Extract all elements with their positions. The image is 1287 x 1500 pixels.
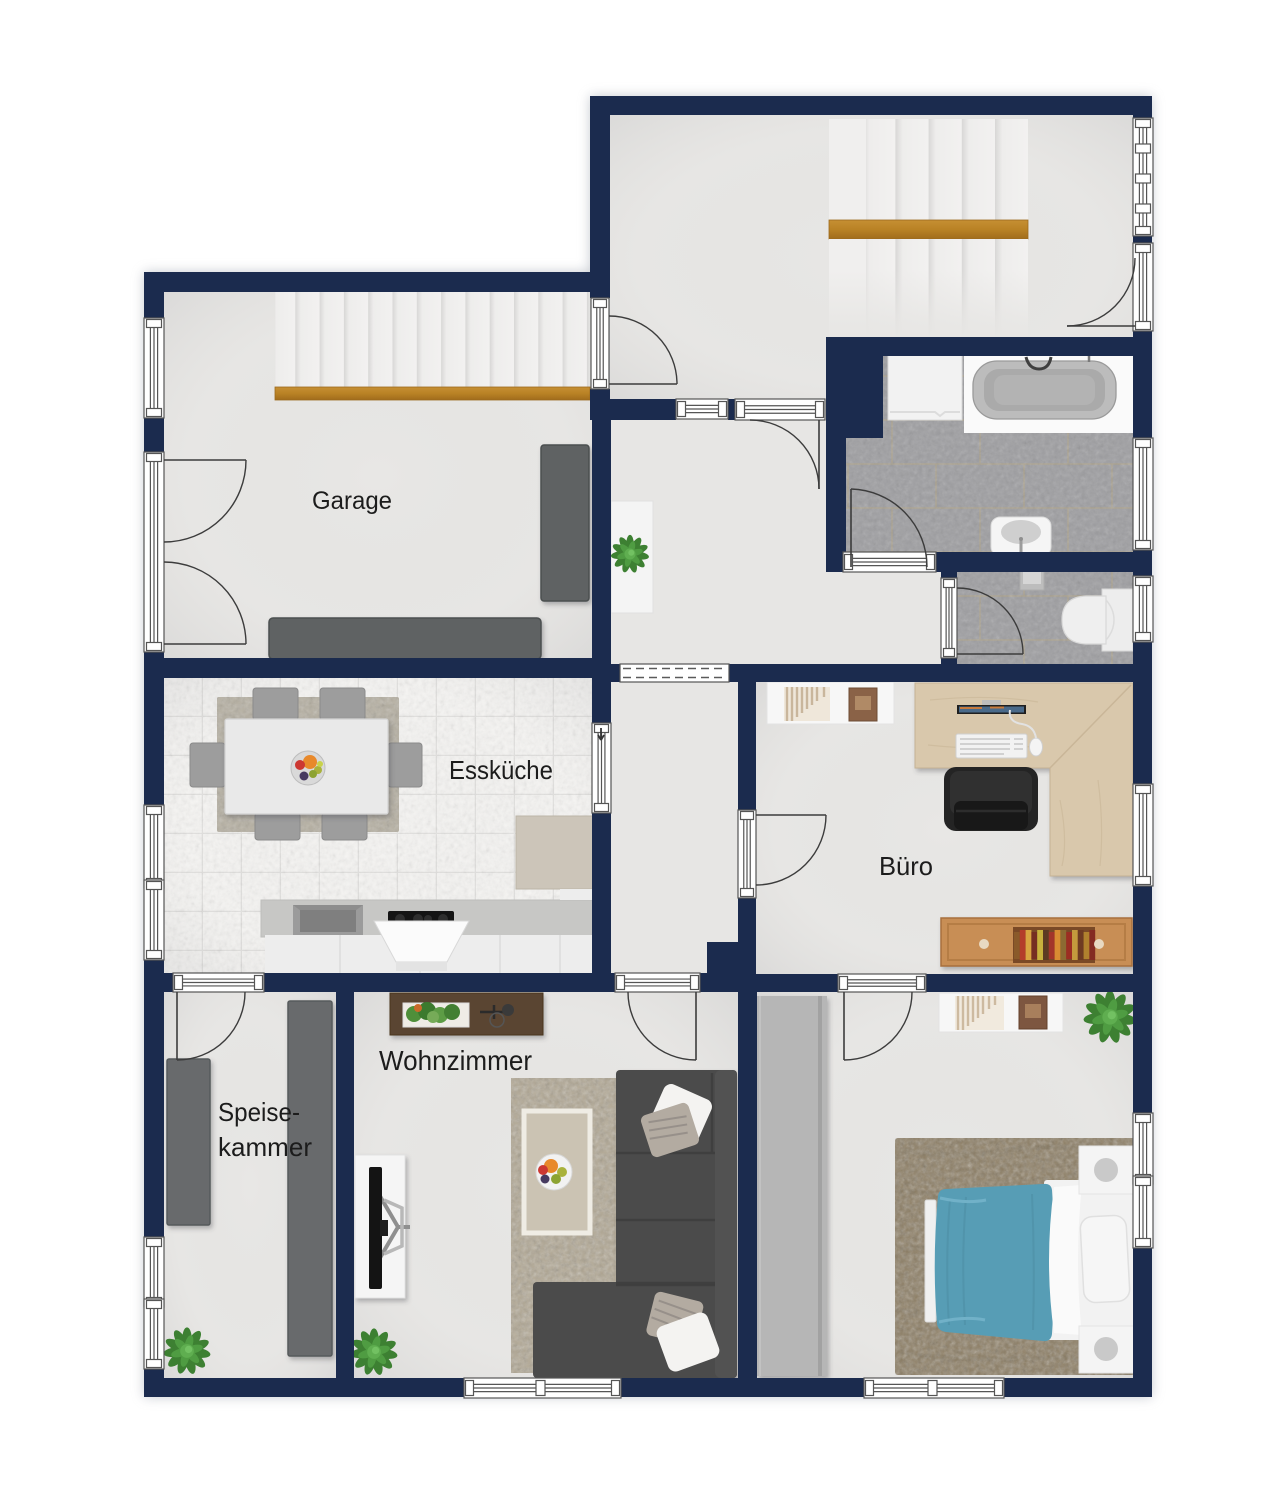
svg-text:kammer: kammer — [218, 1132, 312, 1162]
svg-text:Essküche: Essküche — [449, 755, 553, 785]
svg-text:Garage: Garage — [312, 487, 392, 515]
svg-text:Büro: Büro — [879, 851, 933, 881]
svg-text:Speise-: Speise- — [218, 1097, 300, 1127]
svg-text:Wohnzimmer: Wohnzimmer — [379, 1045, 532, 1076]
